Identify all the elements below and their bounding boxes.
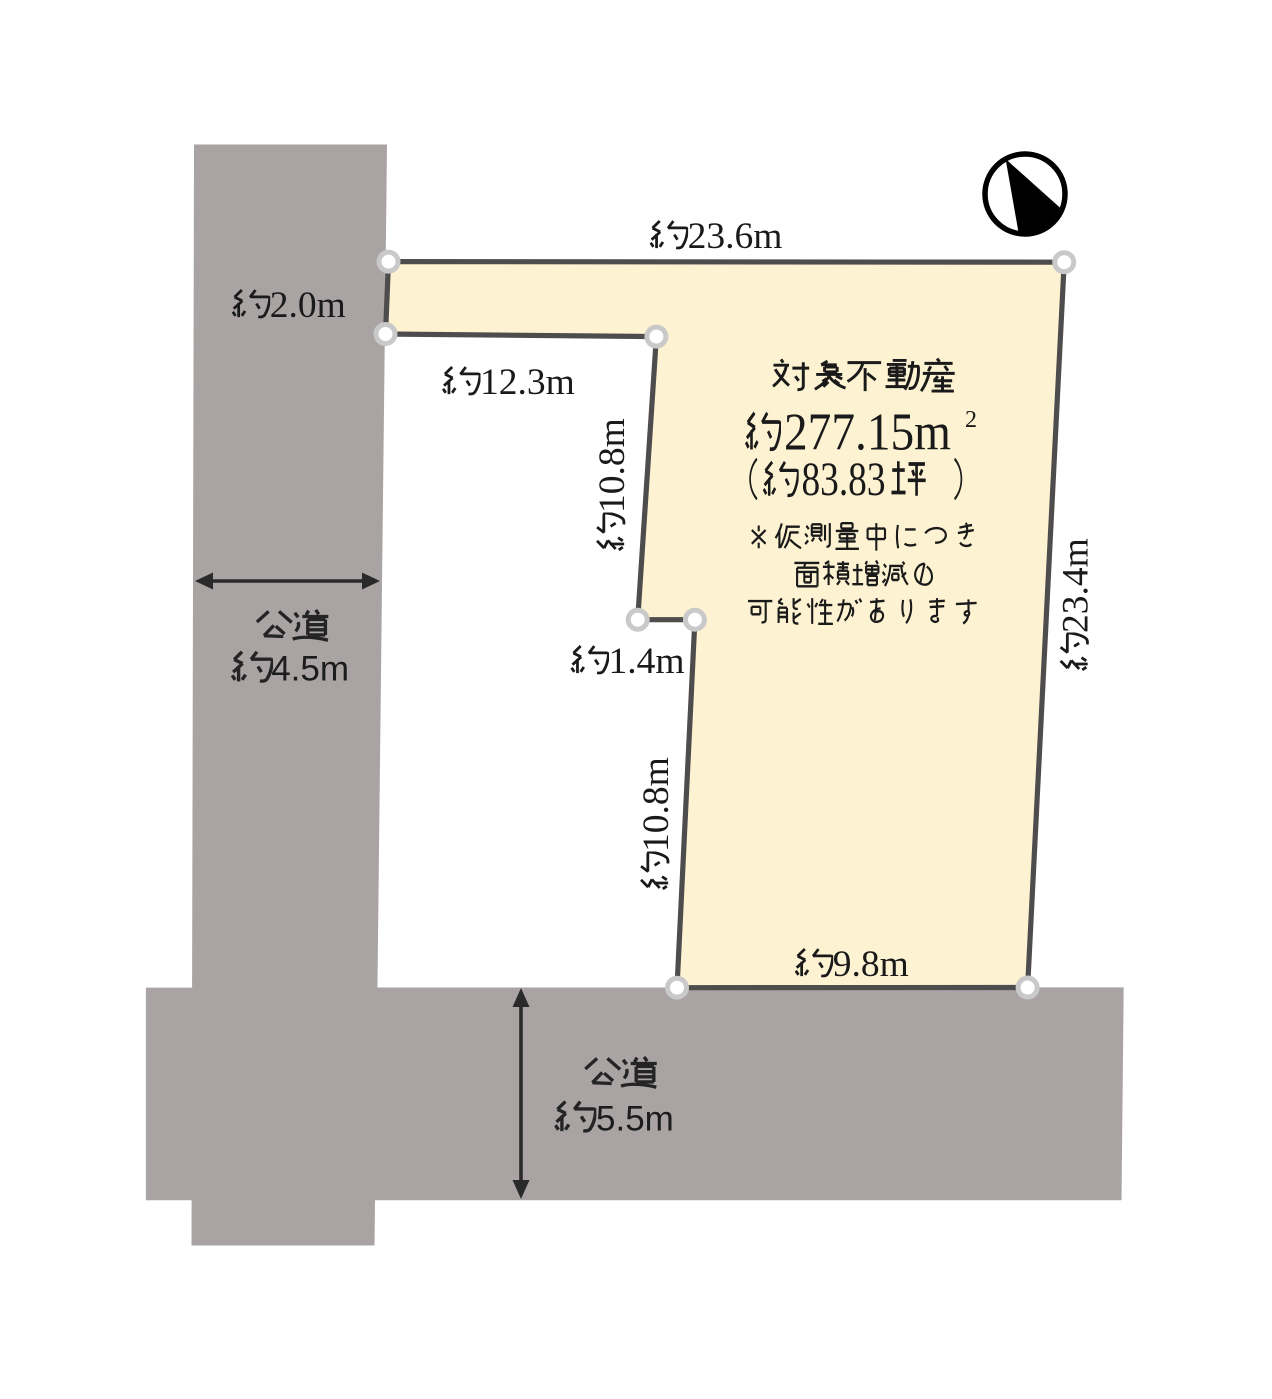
svg-text:5.5m: 5.5m — [596, 1100, 674, 1139]
svg-text:23.6m: 23.6m — [688, 216, 783, 257]
svg-text:4.5m: 4.5m — [271, 650, 349, 689]
svg-text:23.4m: 23.4m — [1056, 538, 1097, 633]
svg-text:9.8m: 9.8m — [833, 944, 909, 985]
svg-text:12.3m: 12.3m — [480, 362, 575, 403]
svg-text:2.0m: 2.0m — [270, 285, 346, 326]
svg-text:83.83: 83.83 — [802, 454, 886, 506]
svg-text:277.15m: 277.15m — [784, 404, 951, 462]
svg-text:10.8m: 10.8m — [592, 418, 633, 513]
svg-text:1.4m: 1.4m — [609, 641, 685, 682]
svg-text:2: 2 — [965, 407, 977, 433]
svg-text:10.8m: 10.8m — [636, 757, 677, 852]
